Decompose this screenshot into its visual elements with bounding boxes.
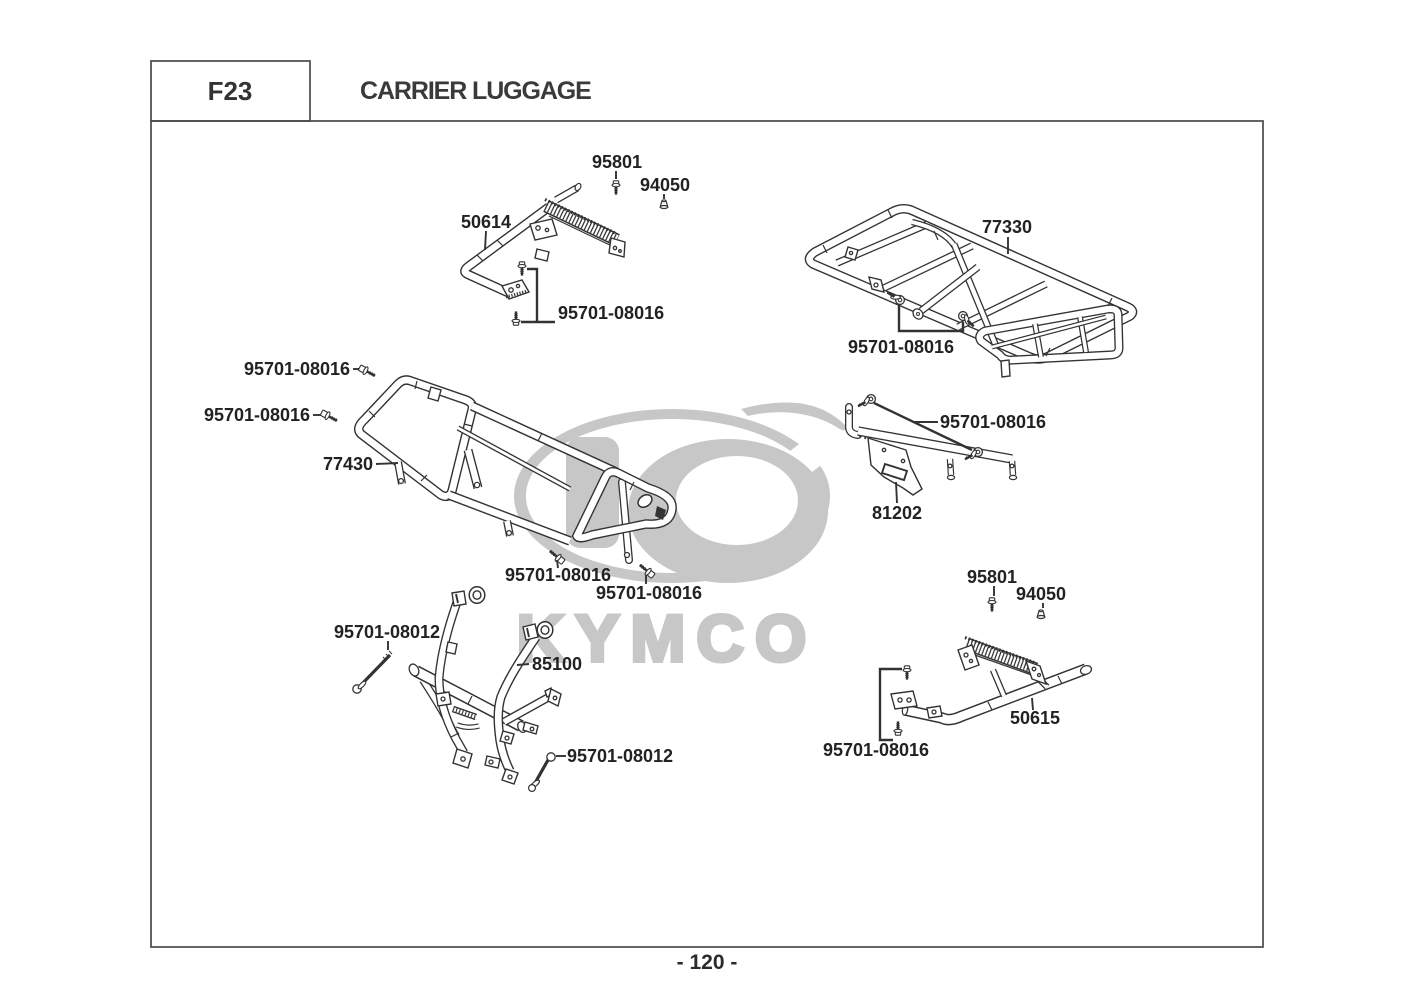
svg-text:50615: 50615 (1010, 708, 1060, 728)
svg-text:77430: 77430 (323, 454, 373, 474)
svg-text:77330: 77330 (982, 217, 1032, 237)
svg-text:CARRIER LUGGAGE: CARRIER LUGGAGE (360, 77, 591, 105)
svg-text:94050: 94050 (1016, 584, 1066, 604)
svg-text:95701-08012: 95701-08012 (334, 622, 440, 642)
svg-text:95701-08016: 95701-08016 (596, 583, 702, 603)
svg-text:95701-08016: 95701-08016 (848, 337, 954, 357)
svg-text:F23: F23 (208, 76, 253, 106)
svg-text:81202: 81202 (872, 503, 922, 523)
svg-text:95701-08016: 95701-08016 (940, 412, 1046, 432)
svg-text:95701-08016: 95701-08016 (204, 405, 310, 425)
svg-text:95701-08012: 95701-08012 (567, 746, 673, 766)
svg-text:94050: 94050 (640, 175, 690, 195)
svg-text:95701-08016: 95701-08016 (823, 740, 929, 760)
svg-text:95701-08016: 95701-08016 (244, 359, 350, 379)
svg-text:95701-08016: 95701-08016 (558, 303, 664, 323)
svg-text:50614: 50614 (461, 212, 511, 232)
svg-text:85100: 85100 (532, 654, 582, 674)
svg-text:95801: 95801 (967, 567, 1017, 587)
svg-text:95701-08016: 95701-08016 (505, 565, 611, 585)
svg-text:- 120 -: - 120 - (677, 951, 738, 974)
svg-text:95801: 95801 (592, 152, 642, 172)
